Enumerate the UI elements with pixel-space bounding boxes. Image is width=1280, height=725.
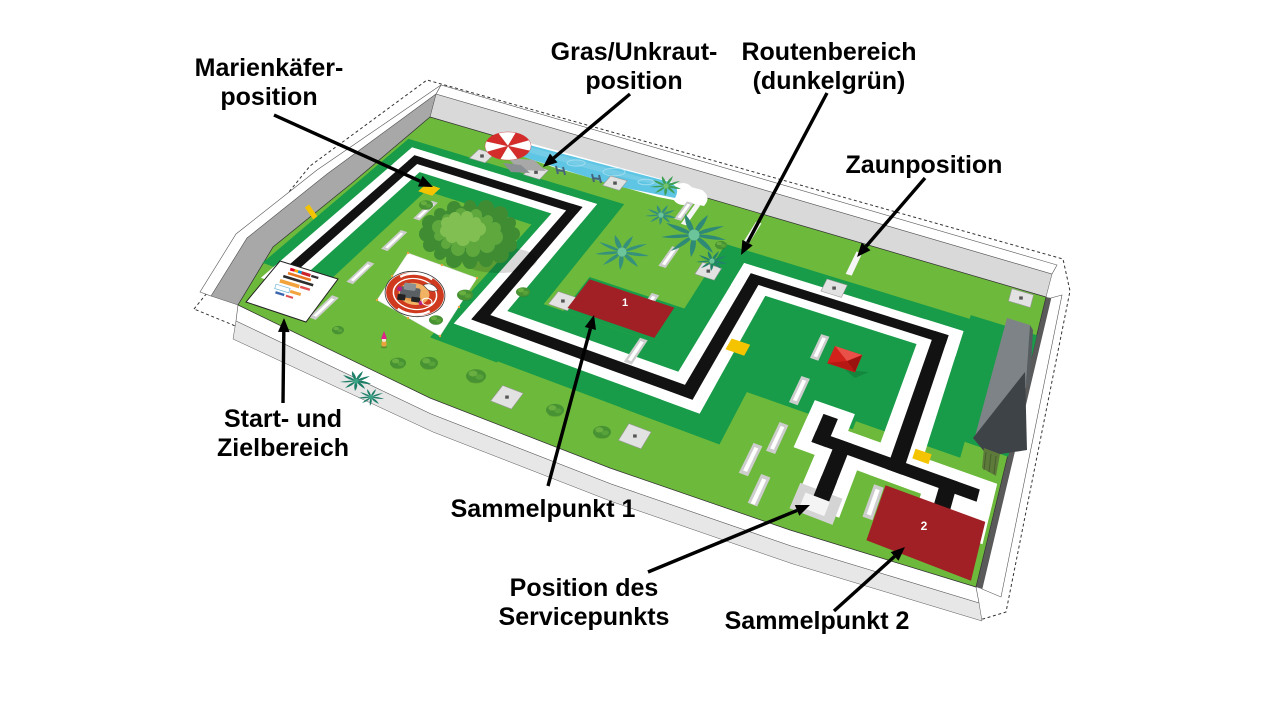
svg-text:(dunkelgrün): (dunkelgrün) (753, 67, 906, 95)
svg-text:2: 2 (921, 519, 928, 533)
svg-text:1: 1 (622, 297, 628, 309)
svg-text:Routenbereich: Routenbereich (741, 38, 916, 66)
svg-text:position: position (220, 83, 317, 111)
svg-text:Gras/Unkraut-: Gras/Unkraut- (551, 38, 718, 66)
svg-text:Start- und: Start- und (224, 405, 342, 433)
svg-text:Zaunposition: Zaunposition (846, 151, 1003, 179)
svg-text:Sammelpunkt 2: Sammelpunkt 2 (725, 607, 910, 635)
svg-text:Servicepunkts: Servicepunkts (499, 603, 670, 631)
svg-text:position: position (585, 67, 682, 95)
svg-text:Position des: Position des (510, 574, 659, 602)
svg-text:Marienkäfer-: Marienkäfer- (195, 54, 344, 82)
svg-text:Zielbereich: Zielbereich (217, 434, 349, 462)
svg-text:Sammelpunkt 1: Sammelpunkt 1 (451, 495, 636, 523)
